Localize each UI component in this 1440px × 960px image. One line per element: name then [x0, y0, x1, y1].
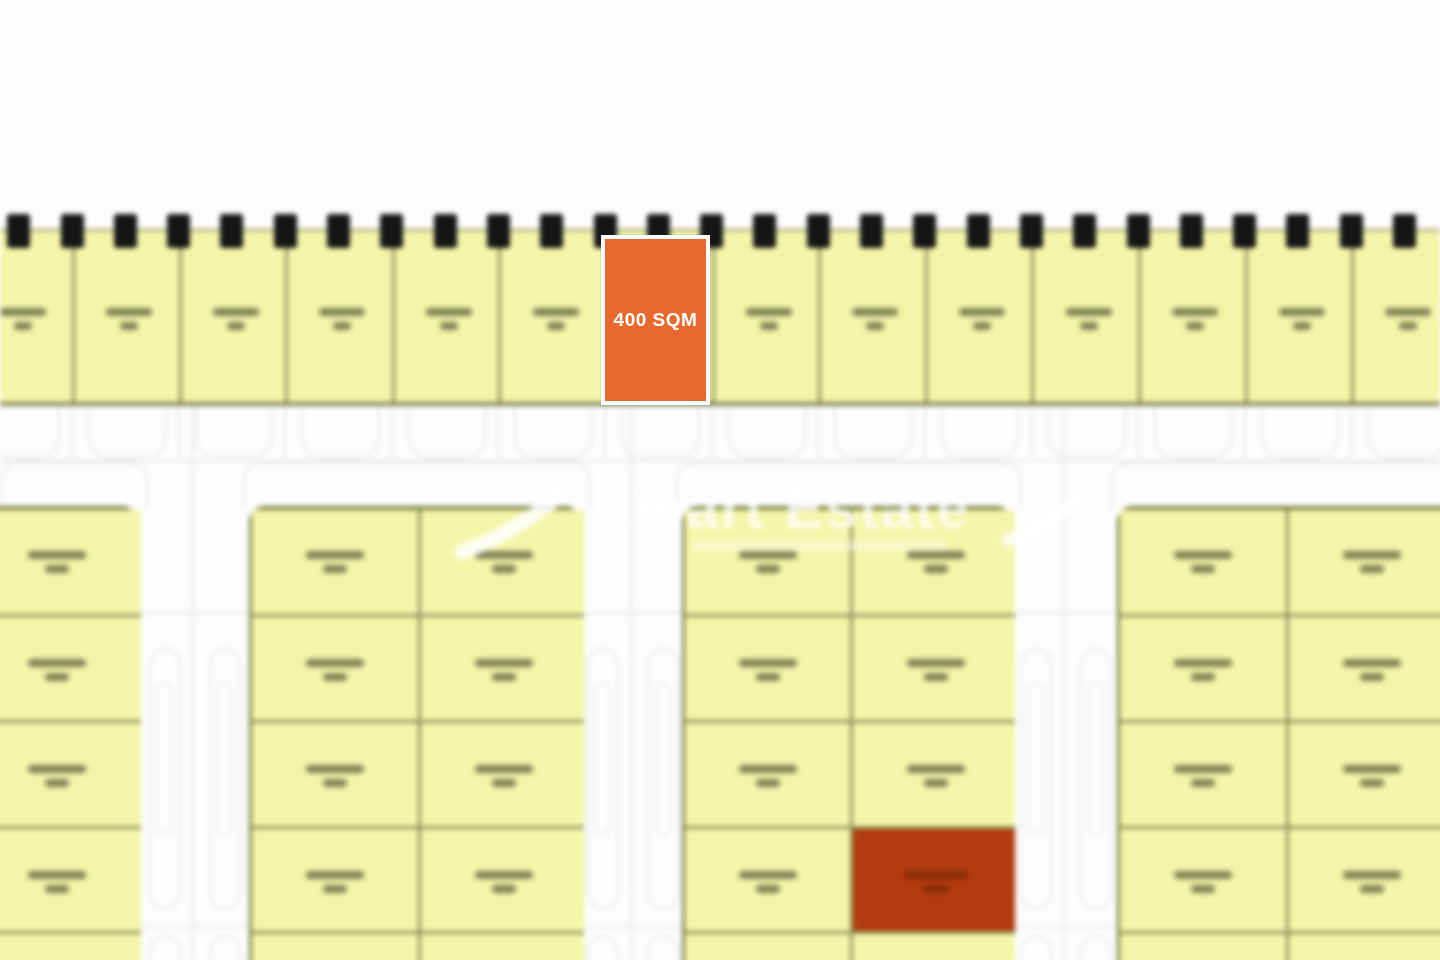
lot-label-blurred — [1172, 308, 1218, 330]
boundary-marker — [913, 214, 936, 248]
plot-divider-extension — [924, 406, 926, 458]
driveway-outline — [88, 406, 167, 458]
plot-divider-extension — [497, 406, 499, 458]
lot-label-blurred — [1279, 308, 1325, 330]
plot-block-d — [1117, 506, 1440, 960]
boundary-marker — [1340, 214, 1363, 248]
lot-label-blurred — [426, 308, 472, 330]
boundary-marker — [1073, 214, 1096, 248]
boundary-marker — [1020, 214, 1043, 248]
plot-divider-extension — [71, 406, 73, 458]
driveway-outline — [834, 406, 913, 458]
boundary-marker — [540, 214, 563, 248]
road-centerline — [192, 406, 194, 960]
lot-label-blurred — [739, 551, 797, 573]
plot-divider-extension — [391, 406, 393, 458]
lot-label-blurred — [28, 551, 86, 573]
lot-label-blurred — [306, 659, 364, 681]
lot-label-blurred — [0, 308, 46, 330]
strip-plot-cell[interactable] — [1031, 231, 1138, 402]
boundary-marker — [1286, 214, 1309, 248]
lot-label-blurred — [106, 308, 152, 330]
plot-divider-extension — [711, 406, 713, 458]
boundary-marker — [1233, 214, 1256, 248]
boundary-marker — [327, 214, 350, 248]
lane-marking — [149, 935, 181, 960]
plot-cell[interactable] — [252, 614, 418, 720]
driveway-outline — [0, 406, 60, 458]
block-apron-outline — [1111, 462, 1440, 510]
plot-cell[interactable] — [1286, 614, 1440, 720]
lot-label-blurred — [475, 765, 533, 787]
lot-label-blurred — [1343, 551, 1401, 573]
driveway-outline — [728, 406, 807, 458]
strip-plot-cell[interactable] — [285, 231, 392, 402]
plot-cell[interactable] — [418, 931, 584, 960]
driveway-outline — [301, 406, 380, 458]
lot-label-blurred — [28, 765, 86, 787]
lane-marking-inner — [654, 682, 671, 836]
plot-cell[interactable] — [418, 826, 584, 931]
plot-cell[interactable] — [1120, 720, 1286, 826]
plot-divider-extension — [284, 406, 286, 458]
lot-label-blurred — [907, 765, 965, 787]
lot-label-blurred — [1343, 871, 1401, 893]
lot-label-blurred — [475, 551, 533, 573]
lot-label-blurred — [475, 871, 533, 893]
plot-cell[interactable] — [418, 614, 584, 720]
lot-label-blurred — [1174, 765, 1232, 787]
lane-marking — [209, 935, 241, 960]
lot-label-blurred — [1174, 551, 1232, 573]
lot-label-blurred — [1343, 765, 1401, 787]
strip-plot-cell[interactable] — [712, 231, 819, 402]
plot-cell[interactable] — [850, 614, 1015, 720]
lot-label-blurred — [959, 308, 1005, 330]
boundary-marker — [274, 214, 297, 248]
plot-cell[interactable] — [0, 931, 141, 960]
plot-divider-extension — [1350, 406, 1352, 458]
plot-block-a — [0, 506, 138, 960]
boundary-marker — [1393, 214, 1416, 248]
driveway-outline — [195, 406, 274, 458]
lot-label-blurred — [1343, 659, 1401, 681]
plot-cell[interactable] — [685, 931, 850, 960]
lot-label-blurred — [739, 659, 797, 681]
lot-label-blurred — [306, 871, 364, 893]
lot-label-blurred — [1385, 308, 1431, 330]
plot-divider-extension — [1030, 406, 1032, 458]
boundary-marker — [1127, 214, 1150, 248]
lot-label-blurred — [852, 308, 898, 330]
lane-marking — [1020, 935, 1052, 960]
lot-label-blurred — [739, 765, 797, 787]
strip-plot-cell[interactable] — [1351, 231, 1440, 402]
strip-plot-cell[interactable] — [925, 231, 1032, 402]
plot-cell[interactable] — [685, 720, 850, 826]
lot-label-blurred — [533, 308, 579, 330]
boundary-marker — [1180, 214, 1203, 248]
lane-marking-inner — [594, 682, 611, 836]
strip-plot-cell[interactable] — [0, 231, 72, 402]
lot-label-blurred — [1174, 871, 1232, 893]
plot-cell-sold[interactable] — [850, 826, 1015, 931]
plot-cell[interactable] — [252, 720, 418, 826]
plot-divider-extension — [178, 406, 180, 458]
driveway-outline — [1261, 406, 1340, 458]
lot-label-blurred — [739, 871, 797, 893]
lot-label-blurred — [213, 308, 259, 330]
lot-label-blurred — [907, 551, 965, 573]
lot-label-blurred — [28, 659, 86, 681]
boundary-marker — [753, 214, 776, 248]
strip-plot-cell[interactable] — [392, 231, 499, 402]
lane-marking-inner — [1087, 682, 1104, 836]
lot-label-blurred — [907, 659, 965, 681]
boundary-marker — [114, 214, 137, 248]
plot-cell[interactable] — [1286, 826, 1440, 931]
plot-cell[interactable] — [0, 614, 141, 720]
plot-cell[interactable] — [1120, 510, 1286, 614]
plot-cell[interactable] — [850, 720, 1015, 826]
lane-marking — [587, 935, 619, 960]
boundary-marker — [967, 214, 990, 248]
plot-block-b — [249, 506, 581, 960]
driveway-outline — [941, 406, 1020, 458]
block-apron-outline — [0, 462, 148, 510]
boundary-marker — [167, 214, 190, 248]
plot-divider-extension — [817, 406, 819, 458]
lot-label-blurred — [475, 659, 533, 681]
lot-label-blurred — [306, 765, 364, 787]
boundary-marker — [807, 214, 830, 248]
plot-cell[interactable] — [418, 720, 584, 826]
site-plan-world: Smart Estate — [0, 0, 1440, 960]
boundary-marker — [220, 214, 243, 248]
lot-label-blurred — [1066, 308, 1112, 330]
plot-cell[interactable] — [685, 826, 850, 931]
driveway-outline — [621, 406, 700, 458]
lot-label-blurred — [28, 871, 86, 893]
plot-cell[interactable] — [1120, 614, 1286, 720]
strip-plot-cell[interactable] — [72, 231, 179, 402]
lane-marking-inner — [1027, 682, 1044, 836]
strip-plot-cell[interactable] — [818, 231, 925, 402]
plot-divider-extension — [1137, 406, 1139, 458]
strip-plot-cell[interactable] — [1138, 231, 1245, 402]
lot-label-blurred — [904, 871, 968, 893]
lot-label-blurred — [306, 551, 364, 573]
plot-cell[interactable] — [252, 931, 418, 960]
plot-divider-extension — [604, 406, 606, 458]
lane-marking-inner — [216, 682, 233, 836]
highlighted-plot-400sqm[interactable]: 400 SQM — [601, 235, 710, 405]
plot-cell[interactable] — [1286, 720, 1440, 826]
plot-cell[interactable] — [0, 720, 141, 826]
road-centerline — [1063, 406, 1065, 960]
boundary-marker — [487, 214, 510, 248]
plot-cell[interactable] — [0, 826, 141, 931]
lane-marking — [647, 935, 679, 960]
strip-plot-cell[interactable] — [1245, 231, 1352, 402]
boundary-marker — [7, 214, 30, 248]
plot-cell[interactable] — [1120, 826, 1286, 931]
top-plot-strip — [0, 229, 1440, 406]
watermark-text: Smart Estate — [592, 474, 971, 541]
plot-cell[interactable] — [0, 510, 141, 614]
plot-cell[interactable] — [1120, 931, 1286, 960]
blurred-site-plan-layer: Smart Estate — [0, 0, 1440, 960]
driveway-outline — [1367, 406, 1440, 458]
block-apron-outline — [243, 462, 591, 510]
plot-cell[interactable] — [1286, 510, 1440, 614]
driveway-outline — [1047, 406, 1126, 458]
driveway-outline — [1154, 406, 1233, 458]
plot-cell[interactable] — [418, 510, 584, 614]
site-plan-screenshot: Smart Estate 400 SQM — [0, 0, 1440, 960]
plot-cell[interactable] — [252, 510, 418, 614]
watermark-subtitle-faint — [692, 541, 948, 551]
lot-label-blurred — [1174, 659, 1232, 681]
lot-label-blurred — [746, 308, 792, 330]
plot-cell[interactable] — [850, 931, 1015, 960]
lot-label-blurred — [319, 308, 365, 330]
strip-plot-cell[interactable] — [498, 231, 605, 402]
highlighted-plot-area-label: 400 SQM — [614, 309, 698, 331]
plot-cell[interactable] — [252, 826, 418, 931]
lane-marking-inner — [156, 682, 173, 836]
driveway-outline — [514, 406, 593, 458]
plot-cell[interactable] — [685, 614, 850, 720]
plot-block-c — [682, 506, 1012, 960]
boundary-marker — [61, 214, 84, 248]
boundary-marker — [434, 214, 457, 248]
lane-marking — [1080, 935, 1112, 960]
plot-divider-extension — [1244, 406, 1246, 458]
boundary-marker — [380, 214, 403, 248]
plot-cell[interactable] — [1286, 931, 1440, 960]
driveway-outline — [408, 406, 487, 458]
strip-plot-cell[interactable] — [179, 231, 286, 402]
boundary-marker — [860, 214, 883, 248]
